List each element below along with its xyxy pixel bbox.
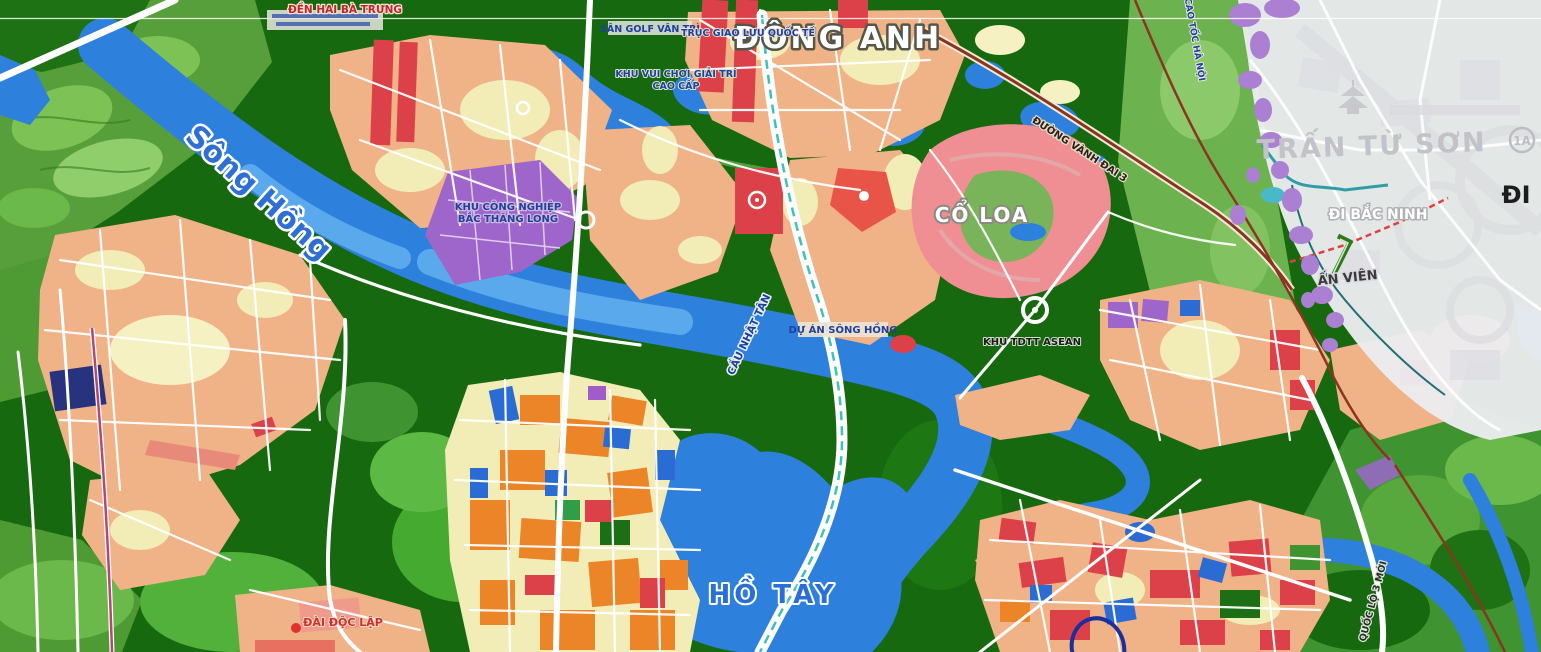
- label-di-bac-ninh: ĐI BẮC NINH: [1329, 204, 1428, 223]
- map-canvas: ĐÔNG ANH Sông Hồng HỒ TÂY CỔ LOA TRẤN TỪ…: [0, 0, 1541, 652]
- svg-text:1A: 1A: [1513, 134, 1531, 148]
- label-den-hai-ba-trung: ĐỀN HAI BÀ TRƯNG: [288, 2, 402, 16]
- label-khu-vui-choi-2: CAO CẤP: [653, 79, 700, 92]
- dai-doc-lap-marker: [291, 623, 301, 633]
- label-khu-tdtt-asean: KHU TDTT ASEAN: [983, 337, 1081, 348]
- label-co-loa: CỔ LOA: [935, 200, 1030, 227]
- label-khu-cong-nghiep-1: KHU CÔNG NGHIỆP: [455, 200, 561, 213]
- label-dai-doc-lap: ĐÀI ĐỘC LẬP: [303, 616, 383, 629]
- marker-dot-pentagon: [859, 191, 869, 201]
- label-ho-tay: HỒ TÂY: [708, 574, 837, 610]
- label-khu-vui-choi-1: KHU VUI CHƠI GIẢI TRÍ: [615, 68, 737, 80]
- label-truc-giao-luu: TRỤC GIAO LƯU QUỐC TẾ: [681, 26, 815, 39]
- faded-text-bar: [1390, 105, 1520, 115]
- label-di: ĐI: [1501, 181, 1530, 209]
